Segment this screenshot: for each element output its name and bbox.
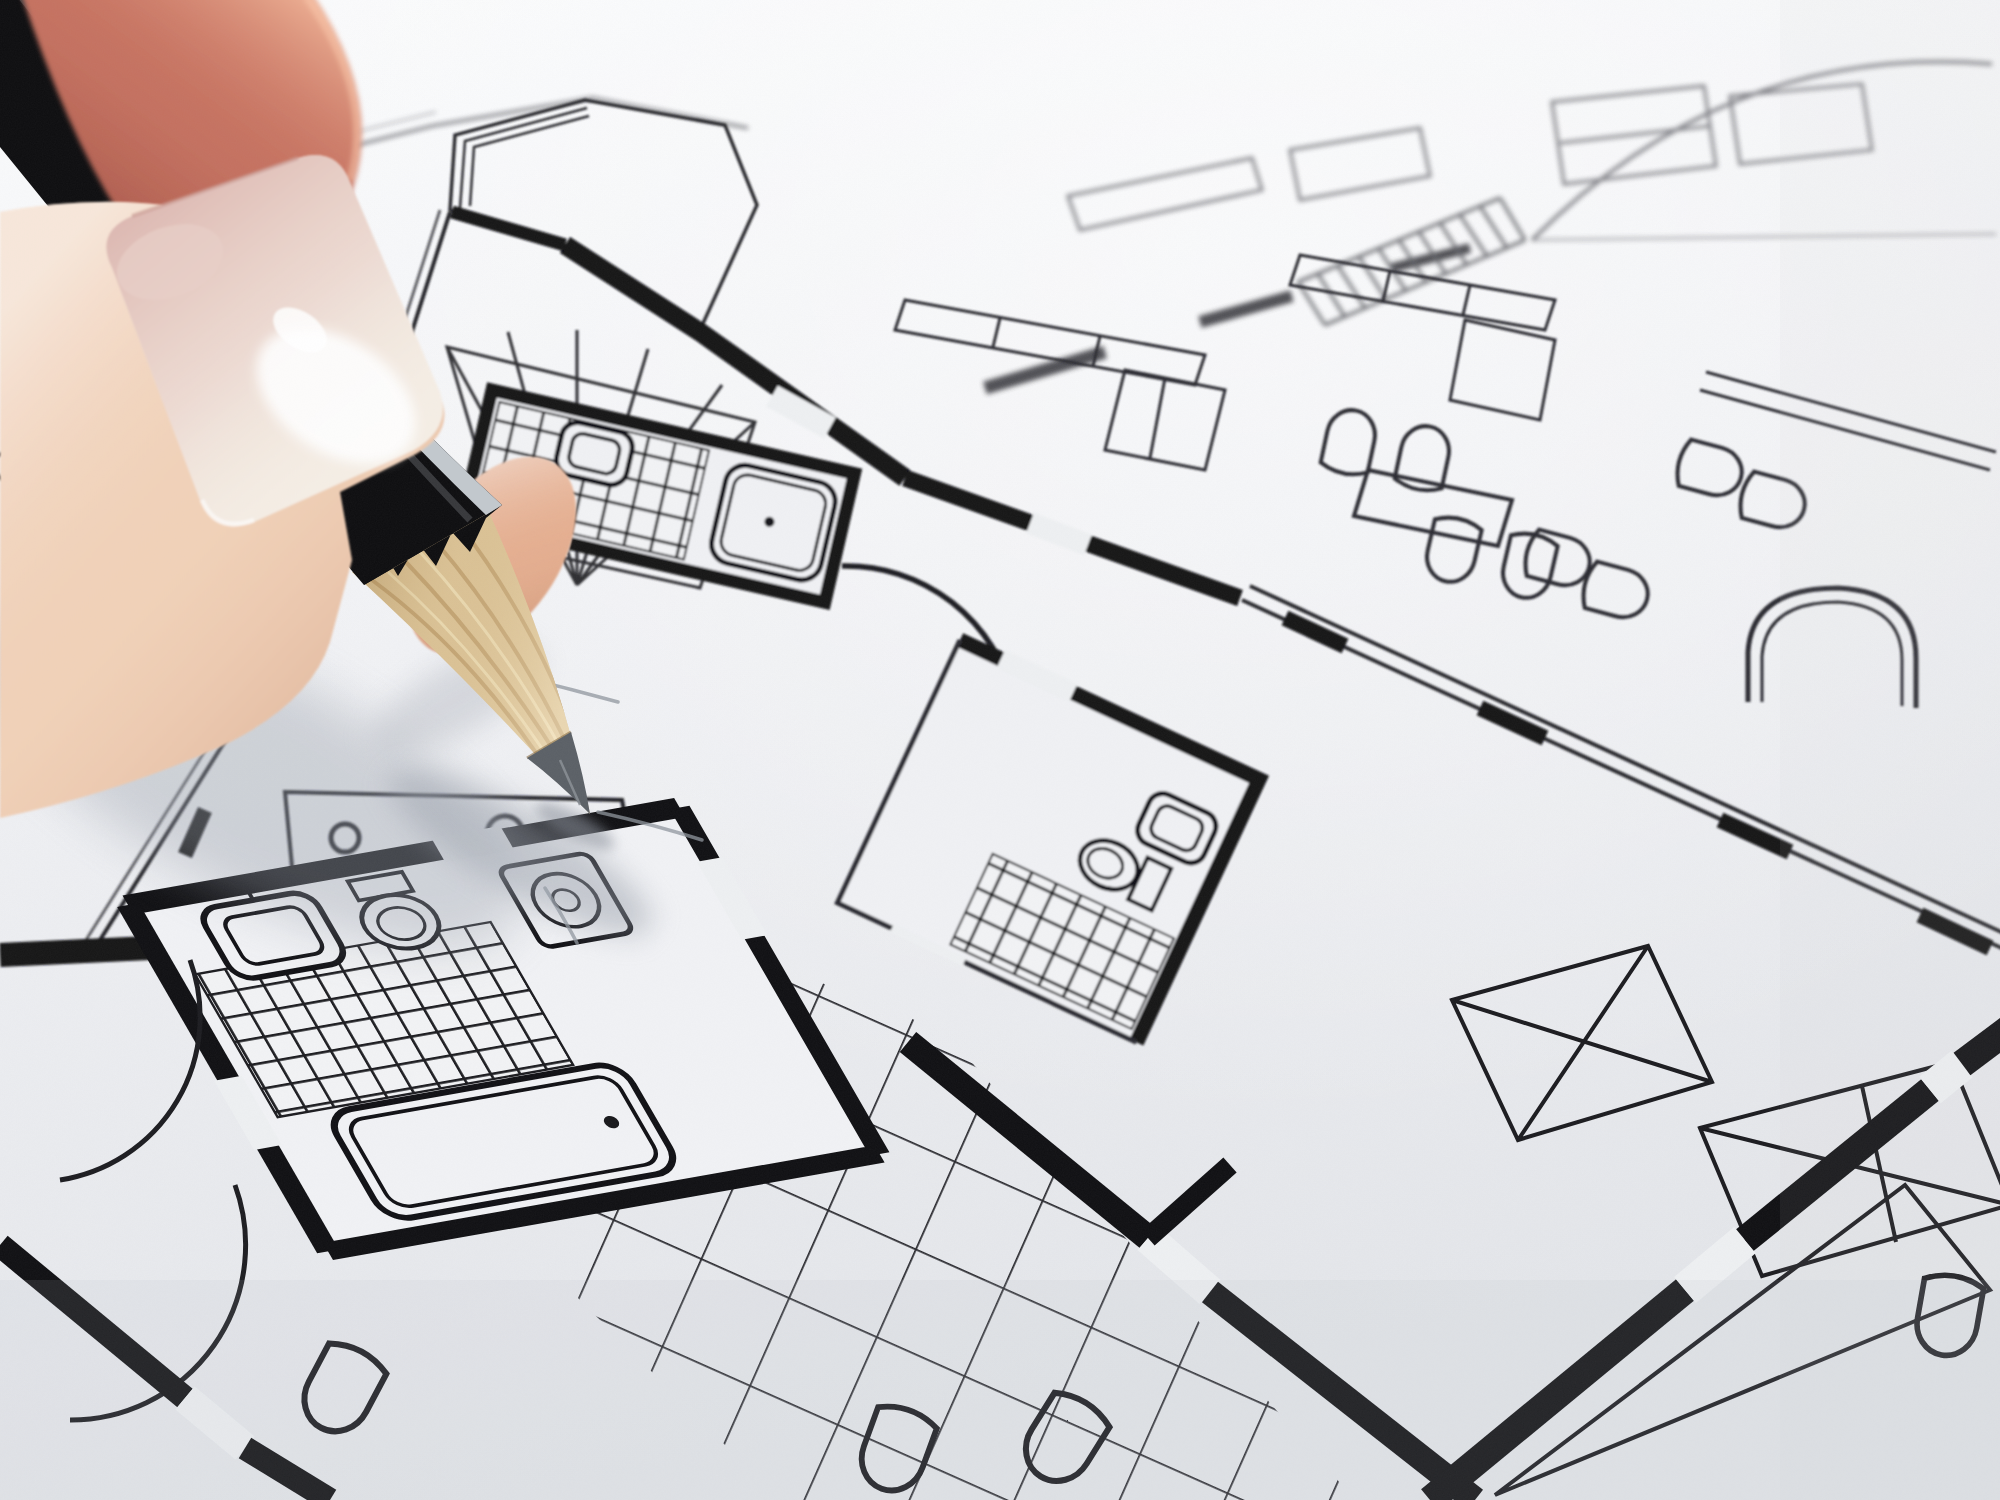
- photo: [0, 0, 2000, 1500]
- paper-grain-texture: [0, 0, 2000, 1500]
- photo-canvas: [0, 0, 2000, 1500]
